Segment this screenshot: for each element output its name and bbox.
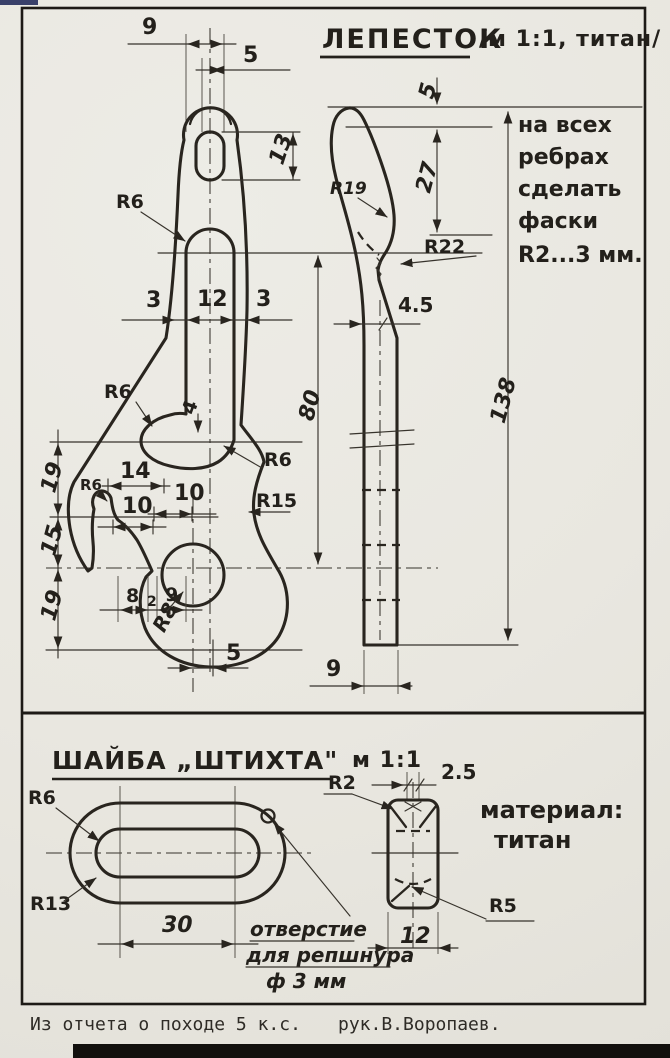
scan-artifact-top bbox=[0, 0, 38, 5]
label-r6-cavity: R6 bbox=[104, 381, 132, 403]
label-r6-corner: R6 bbox=[264, 449, 292, 471]
dim-washer-25: 2.5 bbox=[441, 760, 476, 784]
material-line-1: материал: bbox=[480, 796, 623, 824]
scanned-drawing-page: ЛЕПЕСТОК /м 1:1, титан/ на всех ребрах с… bbox=[0, 0, 670, 1058]
note-line-4: фаски bbox=[518, 209, 598, 234]
dim-bottom-5: 5 bbox=[226, 641, 241, 666]
dim-total-138: 138 bbox=[486, 375, 522, 426]
petal-drawing: ЛЕПЕСТОК /м 1:1, титан/ на всех ребрах с… bbox=[36, 15, 661, 694]
central-slot bbox=[141, 229, 234, 469]
washer-plan-view: R6 R13 30 отверстие для репшнура ф 3 мм bbox=[28, 786, 414, 993]
note-line-3: сделать bbox=[518, 177, 621, 202]
dim-hook-10b: 10 bbox=[174, 481, 205, 506]
dim-top-9: 9 bbox=[142, 15, 157, 40]
dim-body-80: 80 bbox=[294, 387, 326, 423]
label-r22: R22 bbox=[424, 236, 465, 258]
material-note: материал: титан bbox=[480, 796, 623, 854]
dim-side-9: 9 bbox=[326, 657, 341, 682]
note-line-1: на всех bbox=[518, 113, 612, 138]
washer-scale: м 1:1 bbox=[352, 748, 422, 773]
label-r6-hook: R6 bbox=[80, 476, 102, 494]
hole-note-line-2: для репшнура bbox=[245, 943, 414, 967]
dim-washer-12: 12 bbox=[400, 924, 431, 949]
blueprint-canvas: ЛЕПЕСТОК /м 1:1, титан/ на всех ребрах с… bbox=[0, 0, 670, 1058]
dim-wall-right-3: 3 bbox=[256, 287, 271, 312]
petal-title-suffix: /м 1:1, титан/ bbox=[479, 27, 661, 52]
note-line-5: R2...3 мм. bbox=[518, 243, 643, 268]
bottom-chamfer-edge bbox=[392, 886, 409, 901]
petal-side-dimensions: 5 27 R19 R22 4.5 138 9 bbox=[310, 78, 522, 694]
label-washer-r2: R2 bbox=[328, 772, 356, 794]
dim-v-15: 15 bbox=[36, 522, 68, 558]
scan-artifact-bottom-bar bbox=[73, 1044, 670, 1058]
dim-top-5: 5 bbox=[243, 43, 258, 68]
caption-left: Из отчета о походе 5 к.с. bbox=[30, 1014, 301, 1035]
label-r6-slot: R6 bbox=[116, 191, 144, 213]
label-washer-r6: R6 bbox=[28, 787, 56, 809]
dim-wall-left-3: 3 bbox=[146, 288, 161, 313]
dim-hook-10a: 10 bbox=[122, 494, 153, 519]
cord-hole-note: отверстие для репшнура ф 3 мм bbox=[245, 917, 414, 993]
hole-note-line-1: отверстие bbox=[250, 917, 367, 941]
petal-note: на всех ребрах сделать фаски R2...3 мм. bbox=[518, 113, 643, 268]
label-r15: R15 bbox=[256, 490, 297, 512]
label-r19: R19 bbox=[330, 179, 367, 199]
dim-hook-14: 14 bbox=[120, 459, 151, 484]
washer-title: ШАЙБА „ШТИХТА" bbox=[52, 746, 338, 775]
dim-v-19b: 19 bbox=[36, 587, 68, 623]
dim-slot-12: 12 bbox=[197, 287, 228, 312]
dim-side-27: 27 bbox=[411, 159, 443, 196]
dim-washer-30: 30 bbox=[162, 913, 193, 938]
petal-title: ЛЕПЕСТОК bbox=[322, 24, 503, 55]
washer-drawing: ШАЙБА „ШТИХТА" м 1:1 R6 R13 30 отверстие bbox=[28, 746, 623, 993]
caption: Из отчета о походе 5 к.с. рук.В.Воропаев… bbox=[30, 1014, 501, 1035]
dim-b-8: 8 bbox=[126, 585, 139, 607]
hole-note-line-3: ф 3 мм bbox=[266, 969, 346, 993]
label-washer-r13: R13 bbox=[30, 893, 71, 915]
label-washer-r5: R5 bbox=[489, 895, 517, 917]
dim-side-5: 5 bbox=[414, 80, 442, 101]
caption-right: рук.В.Воропаев. bbox=[338, 1014, 501, 1035]
note-line-2: ребрах bbox=[518, 145, 609, 170]
dim-blade-45: 4.5 bbox=[398, 293, 433, 317]
material-line-2: титан bbox=[494, 826, 571, 854]
dim-v-19a: 19 bbox=[36, 459, 68, 495]
